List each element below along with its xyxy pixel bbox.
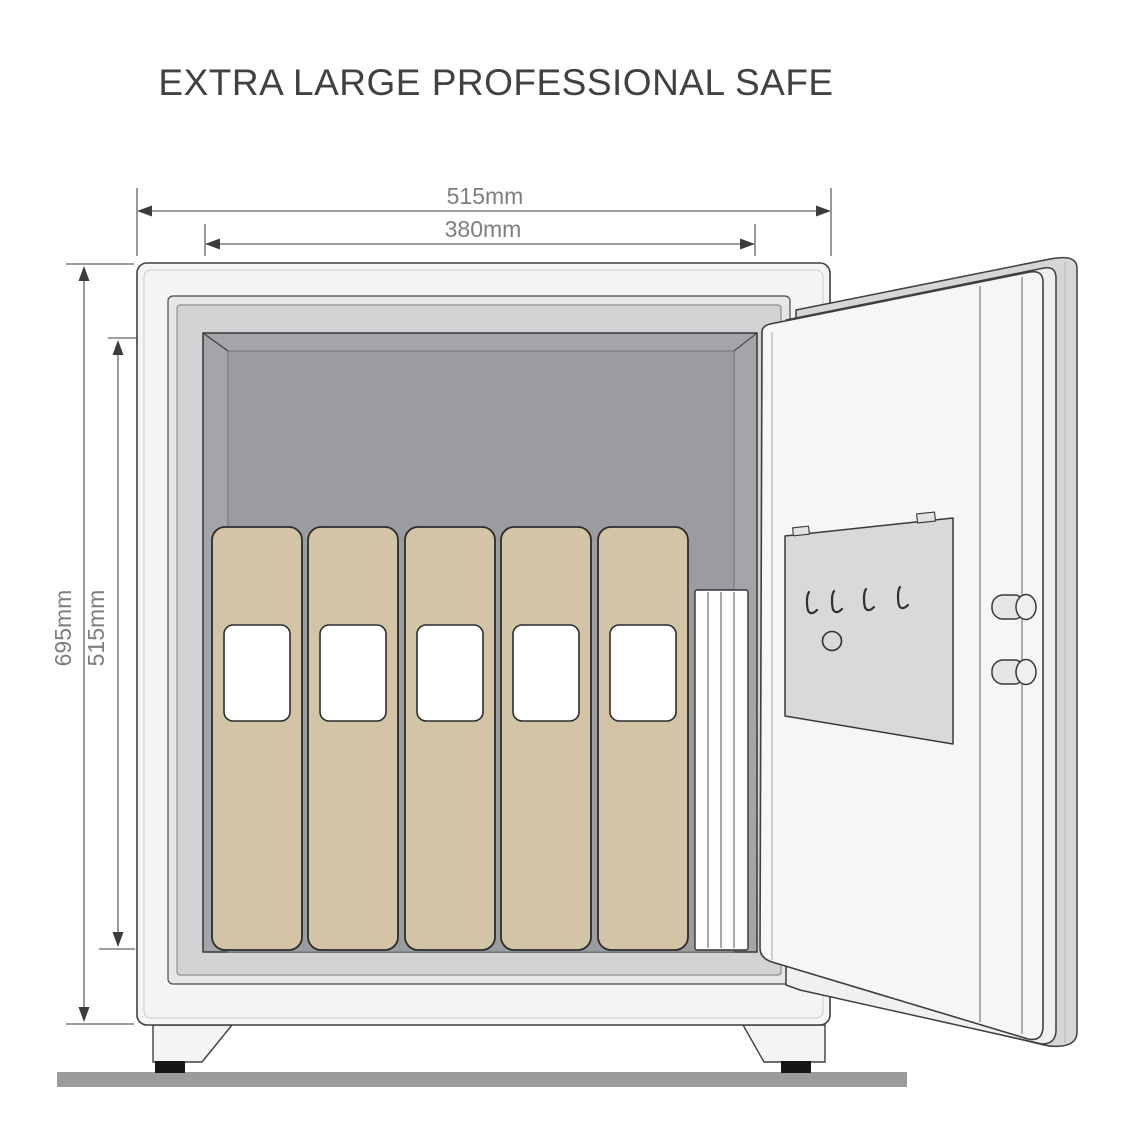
binder-2 xyxy=(308,527,398,950)
panel-clip-icon xyxy=(917,512,936,523)
arrowhead-up-icon xyxy=(113,340,124,355)
inner-width-label: 380mm xyxy=(445,216,522,242)
binder-5 xyxy=(598,527,688,950)
document-stack xyxy=(695,590,748,950)
outer-width-label: 515mm xyxy=(447,183,524,209)
binder-spine xyxy=(501,527,591,950)
binder-label-window xyxy=(320,625,386,721)
lock-bolt-cap xyxy=(1016,660,1036,685)
binder-spine xyxy=(598,527,688,950)
ground-line xyxy=(57,1072,907,1087)
binder-label-window xyxy=(224,625,290,721)
foot-left xyxy=(153,1025,232,1073)
safe-diagram: EXTRA LARGE PROFESSIONAL SAFE 515mm 380m… xyxy=(0,0,1140,1140)
binder-spine xyxy=(212,527,302,950)
foot-right xyxy=(743,1025,825,1073)
foot-body xyxy=(743,1025,825,1062)
arrowhead-right-icon xyxy=(740,239,755,250)
arrowhead-right-icon xyxy=(816,206,831,217)
binder-spine xyxy=(308,527,398,950)
dimension-inner-height: 515mm xyxy=(83,338,137,949)
foot-body xyxy=(153,1025,232,1062)
safe-door-open xyxy=(760,258,1077,1047)
inner-height-label: 515mm xyxy=(83,590,109,667)
arrowhead-left-icon xyxy=(137,206,152,217)
binder-label-window xyxy=(513,625,579,721)
dimension-inner-width: 380mm xyxy=(205,216,755,256)
arrowhead-down-icon xyxy=(113,932,124,947)
binder-label-window xyxy=(417,625,483,721)
page-title: EXTRA LARGE PROFESSIONAL SAFE xyxy=(158,62,833,103)
foot-pad xyxy=(155,1061,185,1073)
binder-label-window xyxy=(610,625,676,721)
arrowhead-down-icon xyxy=(79,1007,90,1022)
diagram-canvas: EXTRA LARGE PROFESSIONAL SAFE 515mm 380m… xyxy=(0,0,1140,1140)
arrowhead-left-icon xyxy=(205,239,220,250)
key-panel-plate xyxy=(785,518,953,744)
panel-clip-icon xyxy=(793,526,810,536)
outer-height-label: 695mm xyxy=(50,590,76,667)
arrowhead-up-icon xyxy=(79,266,90,281)
binder-spine xyxy=(405,527,495,950)
lock-bolt-cap xyxy=(1016,595,1036,620)
key-panel xyxy=(785,512,953,744)
binder-4 xyxy=(501,527,591,950)
binder-1 xyxy=(212,527,302,950)
foot-pad xyxy=(781,1061,811,1073)
binder-3 xyxy=(405,527,495,950)
